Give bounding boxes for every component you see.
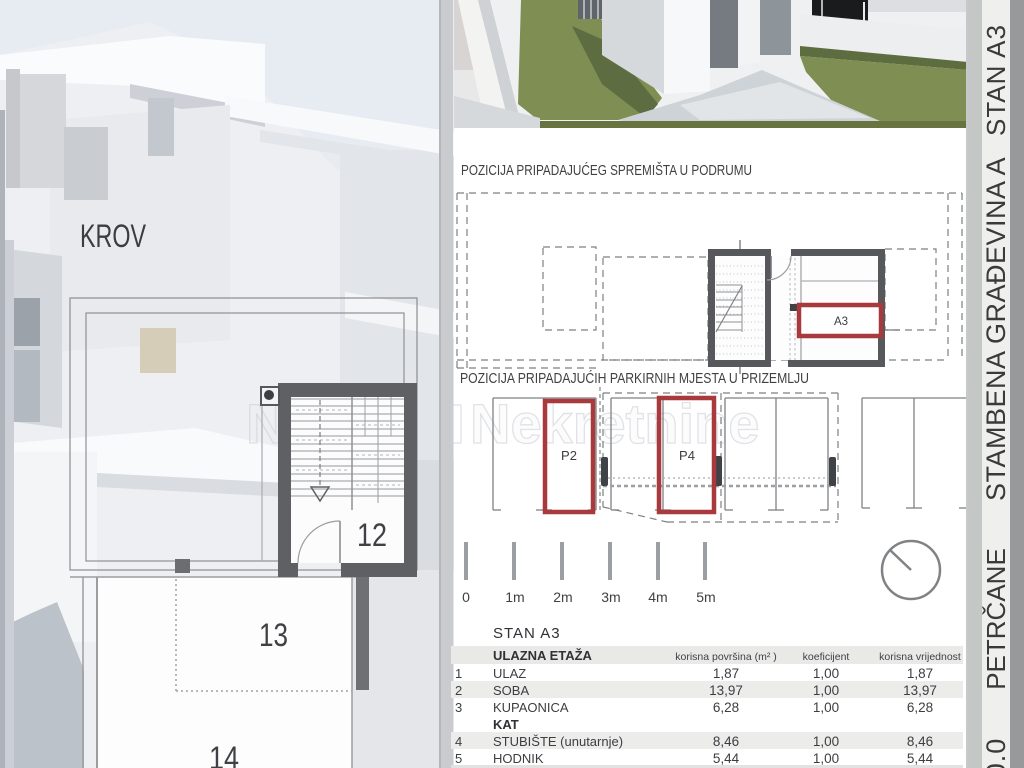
svg-text:3m: 3m <box>601 589 620 605</box>
svg-text:2m: 2m <box>553 589 572 605</box>
svg-text:12: 12 <box>357 517 387 553</box>
svg-text:13: 13 <box>259 617 288 653</box>
svg-text:POZICIJA PRIPADAJUĆEG SPREMIŠT: POZICIJA PRIPADAJUĆEG SPREMIŠTA U PODRUM… <box>461 162 752 179</box>
svg-text:4m: 4m <box>648 589 667 605</box>
svg-text:P2: P2 <box>561 448 577 463</box>
svg-text:POZICIJA PRIPADAJUĆIH PARKIRNI: POZICIJA PRIPADAJUĆIH PARKIRNIH MJESTA U… <box>460 370 809 387</box>
svg-text:KROV: KROV <box>80 218 146 254</box>
svg-text:0: 0 <box>462 589 470 605</box>
svg-text:1m: 1m <box>505 589 524 605</box>
svg-text:A3: A3 <box>834 316 848 328</box>
svg-text:5m: 5m <box>696 589 715 605</box>
svg-text:P4: P4 <box>679 448 695 463</box>
svg-text:14: 14 <box>209 740 239 768</box>
